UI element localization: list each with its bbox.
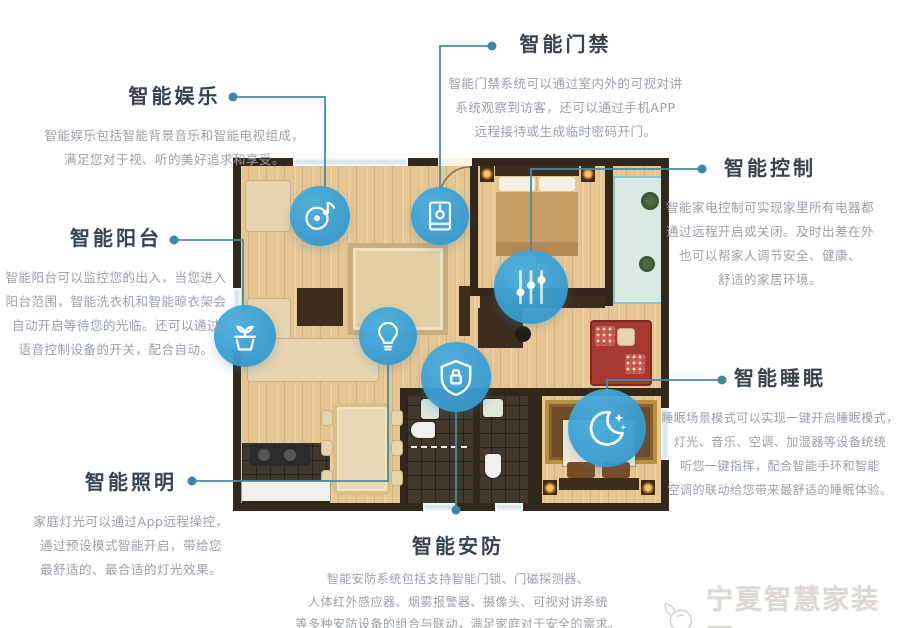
callout-title: 智能安防	[283, 530, 633, 559]
callout-line: 通过远程开启或关闭。及时出差在外	[642, 220, 898, 244]
callout-security: 智能安防 智能安防系统包括支持智能门锁、门磁探测器、 人体红外感应器、烟雾报警器…	[283, 530, 633, 628]
burner	[284, 449, 296, 461]
dining-chair	[391, 470, 403, 486]
callout-line: 系统观察到访客，还可以通过手机APP	[418, 96, 713, 120]
bed1-pillow	[539, 177, 575, 191]
bath-plant	[483, 399, 503, 417]
wall-bath-bedroom	[528, 396, 542, 506]
callout-access: 智能门禁 智能门禁系统可以通过室内外的可视对讲 系统观察到访客，还可以通过手机A…	[418, 28, 713, 144]
dining-chair	[391, 440, 403, 456]
window-bottom-1	[423, 503, 455, 511]
callout-line: 家庭灯光可以通过App远程操控，	[12, 510, 250, 534]
dining-table	[333, 403, 391, 495]
callout-balcony: 智能阳台 智能阳台可以监控您的出入，当您进入 阳台范围，智能洗衣机和智能晾衣架会…	[0, 222, 232, 362]
callout-title: 智能娱乐	[22, 80, 327, 109]
stove	[250, 444, 310, 466]
callout-line: 通过预设模式智能开启，带给您	[12, 534, 250, 558]
music-disc-icon	[302, 198, 338, 234]
shield-lock-icon	[437, 358, 475, 396]
lighting-node	[359, 307, 417, 365]
entry-door-gap	[438, 158, 472, 166]
moon-stars-icon	[585, 406, 629, 450]
control-node	[494, 250, 568, 324]
callout-line: 自动开启等待您的光临。还可以通过	[0, 314, 232, 338]
tv-cabinet	[459, 286, 470, 336]
bed1-headboard	[495, 166, 579, 176]
entertainment-node	[290, 186, 350, 246]
callout-line: 最舒适的、最合适的灯光效果。	[12, 558, 250, 582]
lamp-glow	[582, 168, 594, 180]
small-sofa	[245, 180, 291, 232]
wall-living-bedroom	[470, 166, 478, 292]
burner	[258, 449, 270, 461]
lamp-glow	[544, 482, 556, 494]
bed2-pillow	[567, 462, 595, 478]
callout-sleep: 智能睡眠 睡眠场景模式可以实现一键开启睡眠模式， 灯光、音乐、空调、加湿器等设备…	[656, 362, 900, 502]
callout-line: 睡眠场景模式可以实现一键开启睡眠模式，	[656, 406, 900, 430]
light-bulb-icon	[371, 319, 405, 353]
dining-chair	[321, 410, 333, 426]
callout-line: 听您一键指挥，配合智能手环和智能	[656, 454, 900, 478]
callout-line: 智能娱乐包括智能背景音乐和智能电视组成，	[22, 124, 327, 148]
bed1-pillow	[499, 177, 535, 191]
callout-line: 远程接待或生成临时密码开门。	[418, 120, 713, 144]
callout-line: 灯光、音乐、空调、加湿器等设备统统	[656, 430, 900, 454]
bed2-headboard	[559, 478, 639, 490]
callout-line: 阳台范围，智能洗衣机和智能晾衣架会	[0, 290, 232, 314]
dining-chair	[321, 440, 333, 456]
dining-chair	[391, 410, 403, 426]
access-node	[411, 187, 469, 245]
callout-line: 舒适的家居环境。	[642, 268, 898, 292]
callout-line: 也可以帮家人调节安全、健康、	[642, 244, 898, 268]
callout-line: 智能家电控制可实现家里所有电器都	[642, 196, 898, 220]
toilet	[411, 422, 435, 438]
lamp-glow	[481, 168, 493, 180]
watermark: 宁夏智慧家装网	[658, 578, 900, 628]
red-pillow	[595, 326, 615, 346]
callout-line: 智能阳台可以监控您的出入，当您进入	[0, 266, 232, 290]
callout-line: 空调的联动给您带来最舒适的睡眠体验。	[656, 478, 900, 502]
sliders-icon	[510, 266, 552, 308]
beige-pillow	[617, 328, 635, 346]
callout-entertainment: 智能娱乐 智能娱乐包括智能背景音乐和智能电视组成， 满足您对于视、听的美好追求和…	[22, 80, 327, 172]
callout-line: 智能门禁系统可以通过室内外的可视对讲	[418, 72, 713, 96]
lamp-glow	[642, 482, 654, 494]
toilet	[485, 454, 501, 478]
callout-line: 人体红外感应器、烟雾报警器、摄像头、可视对讲系统	[283, 591, 633, 614]
callout-line: 等多种安防设备的组合与联动，满足家庭对于安全的需求。	[283, 613, 633, 628]
bed1-duvet	[496, 192, 578, 256]
callout-line: 智能安防系统包括支持智能门锁、门磁探测器、	[283, 568, 633, 591]
wall-balcony	[605, 166, 613, 306]
callout-line: 满足您对于视、听的美好追求和享受。	[22, 148, 327, 172]
red-pillow	[625, 354, 645, 374]
callout-lighting: 智能照明 家庭灯光可以通过App远程操控， 通过预设模式智能开启，带给您 最舒适…	[12, 466, 250, 582]
callout-line: 语音控制设备的开关，配合自动。	[0, 338, 232, 362]
watermark-logo-icon	[658, 597, 698, 628]
kitchen-counter	[242, 481, 330, 501]
smart-home-infographic: 智能娱乐 智能娱乐包括智能背景音乐和智能电视组成， 满足您对于视、听的美好追求和…	[0, 0, 900, 628]
door-access-icon	[423, 199, 457, 233]
coffee-table	[297, 288, 343, 326]
callout-title: 智能控制	[642, 152, 898, 181]
callout-title: 智能照明	[12, 466, 250, 495]
desk-chair	[515, 326, 531, 342]
callout-title: 智能阳台	[0, 222, 232, 251]
shower-line	[411, 446, 467, 448]
callout-title: 智能门禁	[418, 28, 713, 57]
watermark-text: 宁夏智慧家装网	[706, 578, 900, 628]
wall-bath-divider	[473, 396, 480, 506]
sleep-node	[568, 389, 646, 467]
security-node	[421, 342, 491, 412]
window-bottom-2	[495, 503, 523, 511]
callout-control: 智能控制 智能家电控制可实现家里所有电器都 通过远程开启或关闭。及时出差在外 也…	[642, 152, 898, 292]
plant-pot-icon	[227, 318, 263, 354]
callout-title: 智能睡眠	[656, 362, 900, 391]
